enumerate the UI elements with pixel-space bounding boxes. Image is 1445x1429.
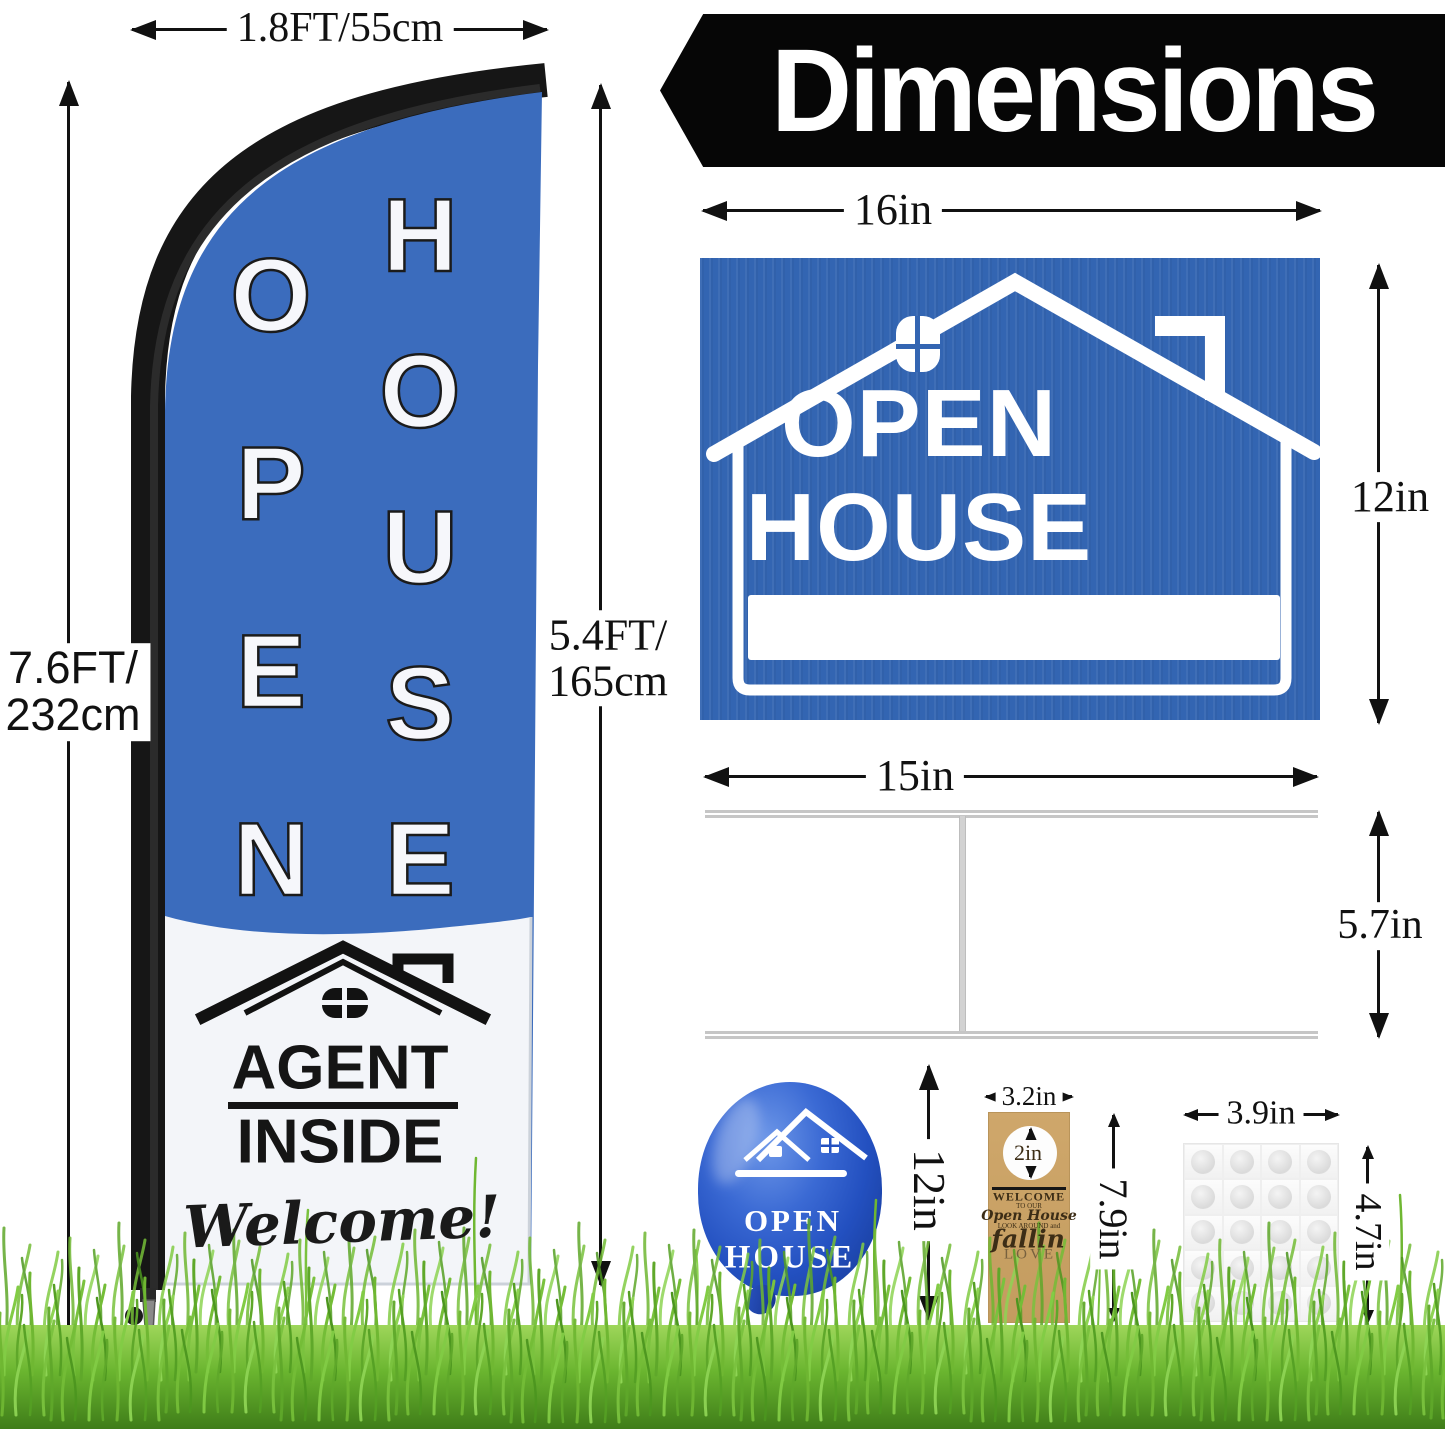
grass (0, 1140, 1445, 1429)
sign-width-label: 16in (844, 185, 942, 235)
sheet-height-label: 4.7in (1345, 1183, 1389, 1280)
hanger-height-label: 7.9in (1090, 1168, 1136, 1269)
h-stake-top-rail (705, 810, 1318, 818)
agent-word: AGENT (232, 1033, 449, 1104)
h-stake-bottom-rail (705, 1031, 1318, 1039)
stake-width-label: 15in (866, 751, 964, 801)
hanger-width-label: 3.2in (996, 1081, 1063, 1111)
open-house-kit-dimensions-image: Dimensions 1.8FT/55cm 7.6FT/ 232cm 5.4FT… (0, 0, 1445, 1429)
inside-word: INSIDE (237, 1107, 444, 1178)
pole-height-label: 7.6FT/ 232cm (0, 643, 151, 741)
pole-height-label-line1: 7.6FT/ (5, 645, 140, 692)
stake-width-arrow (705, 775, 1317, 778)
yard-sign: OPEN HOUSE (700, 258, 1320, 720)
flag-height-label-line2: 165cm (548, 658, 668, 704)
welcome-script: Welcome! (182, 1182, 501, 1261)
balloon-height-label: 12in (903, 1139, 955, 1241)
sheet-width-label: 3.9in (1219, 1094, 1304, 1131)
flag-word-house: HOUSE (368, 178, 472, 958)
dimensions-banner: Dimensions (660, 14, 1445, 167)
h-stake-center-bar (959, 816, 966, 1031)
sign-word-open: OPEN (700, 376, 1138, 472)
sign-width-arrow (703, 209, 1320, 212)
flag-width-label: 1.8FT/55cm (227, 5, 454, 53)
flag-word-open: OPEN (219, 238, 323, 990)
sign-blank-strip (748, 595, 1280, 660)
sign-word-house: HOUSE (700, 480, 1138, 576)
hanger-text-love: LOVE (1004, 1247, 1056, 1264)
flag-height-label: 5.4FT/ 165cm (538, 610, 678, 706)
flag-height-label-line1: 5.4FT/ (548, 612, 668, 658)
stake-height-label: 5.7in (1327, 902, 1432, 950)
banner-title: Dimensions (729, 23, 1376, 158)
sticker-size-label: 2in (1011, 1140, 1045, 1166)
sign-height-label: 12in (1341, 472, 1439, 522)
pole-height-label-line2: 232cm (5, 692, 140, 739)
